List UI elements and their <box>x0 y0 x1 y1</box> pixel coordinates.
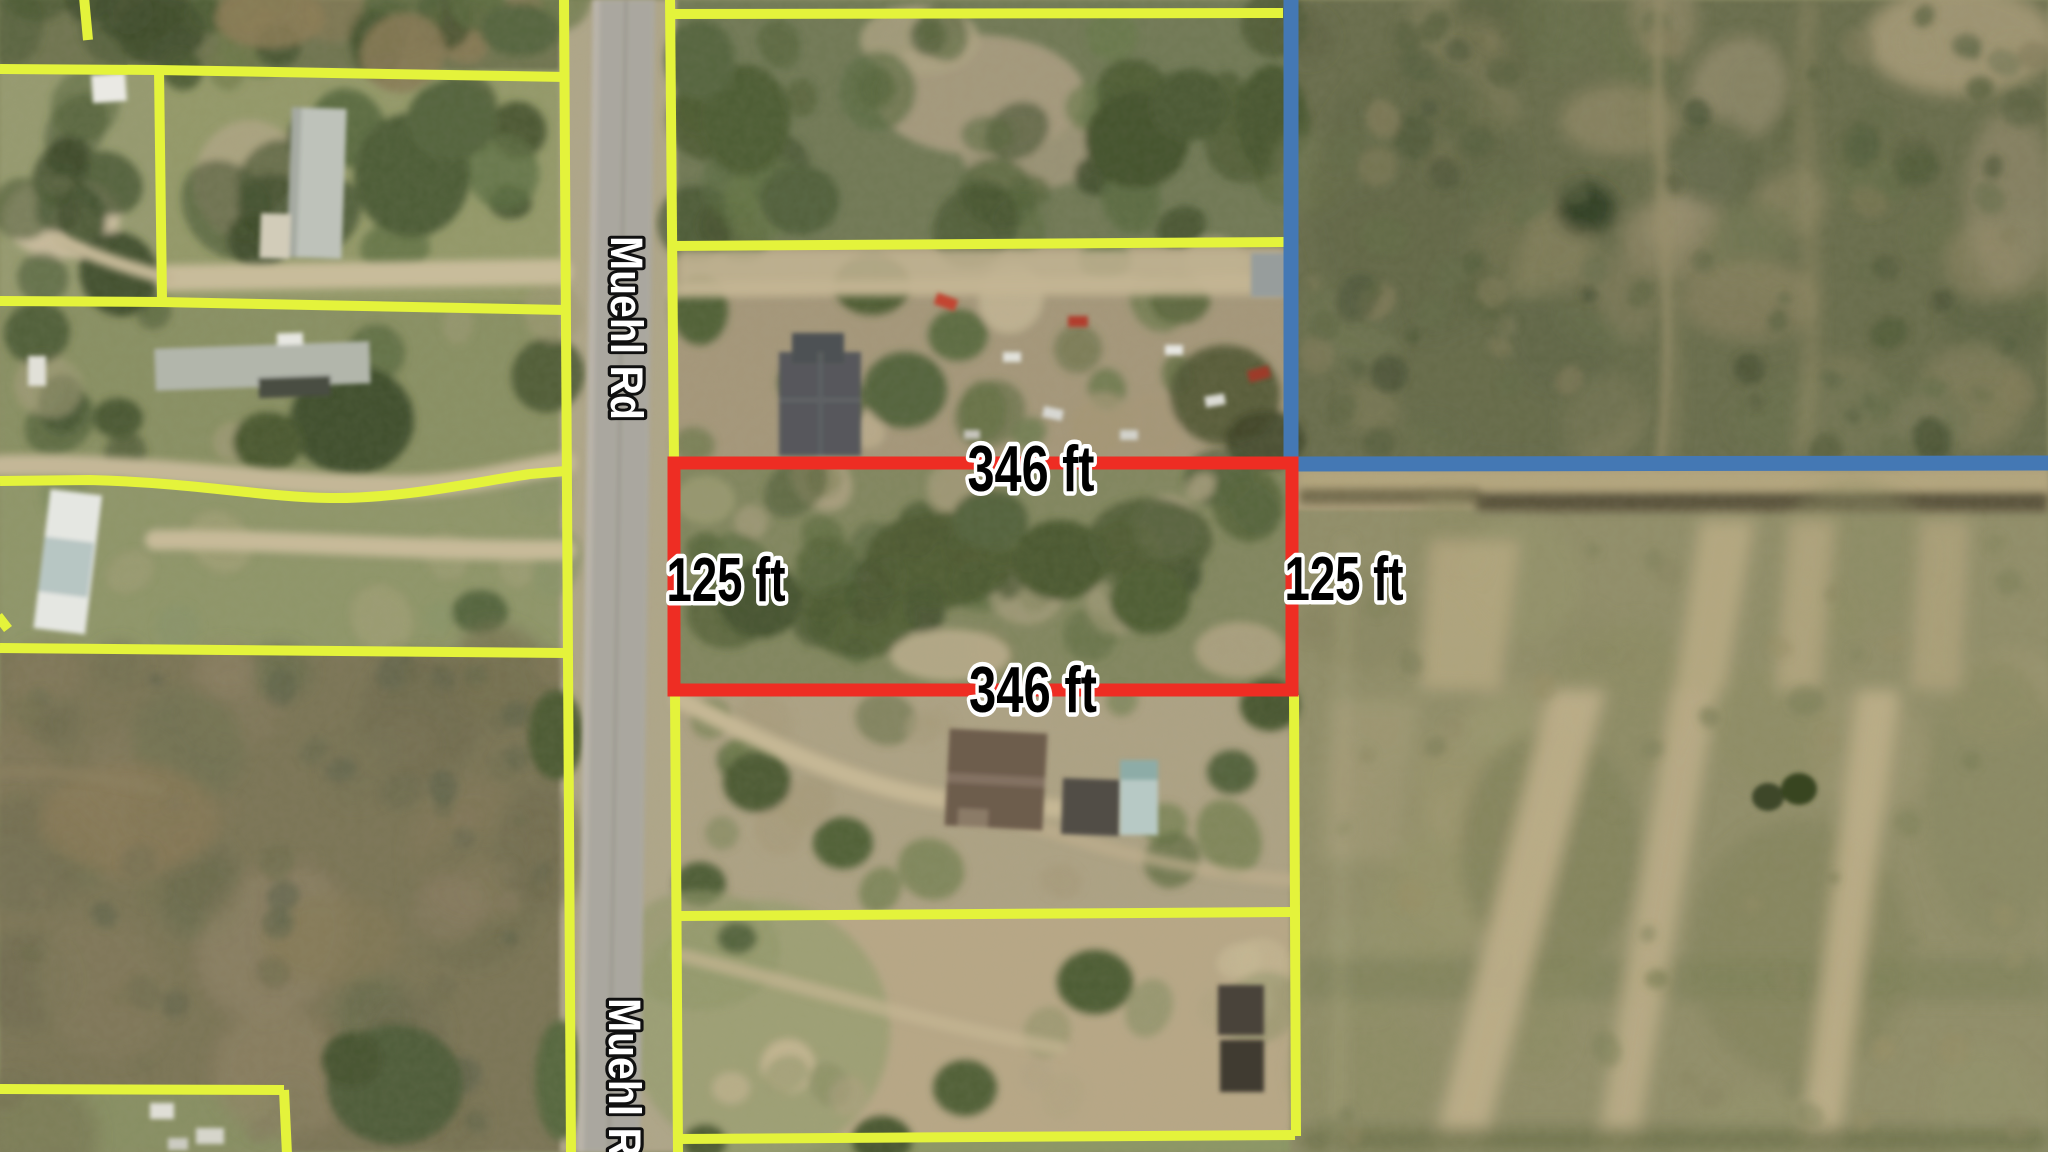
svg-text:125 ft: 125 ft <box>1285 545 1404 614</box>
svg-text:125 ft: 125 ft <box>667 546 786 615</box>
svg-text:Muehl Rd: Muehl Rd <box>599 998 650 1152</box>
svg-text:346 ft: 346 ft <box>969 653 1097 726</box>
svg-text:Muehl Rd: Muehl Rd <box>601 236 652 420</box>
svg-text:346 ft: 346 ft <box>968 432 1095 505</box>
